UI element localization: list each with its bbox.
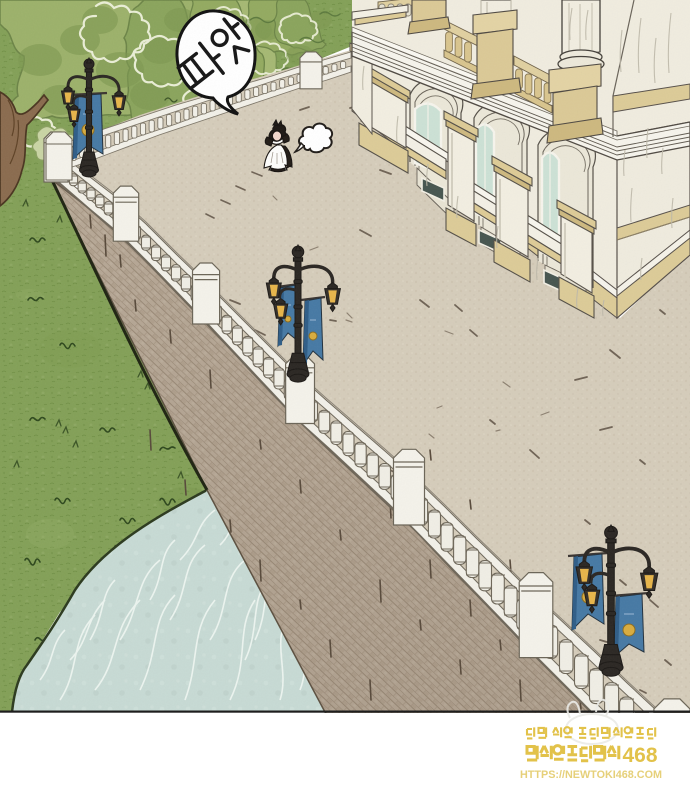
svg-text:468: 468 [622,744,657,767]
svg-text:HTTPS://NEWTOKI468.COM: HTTPS://NEWTOKI468.COM [520,769,662,781]
